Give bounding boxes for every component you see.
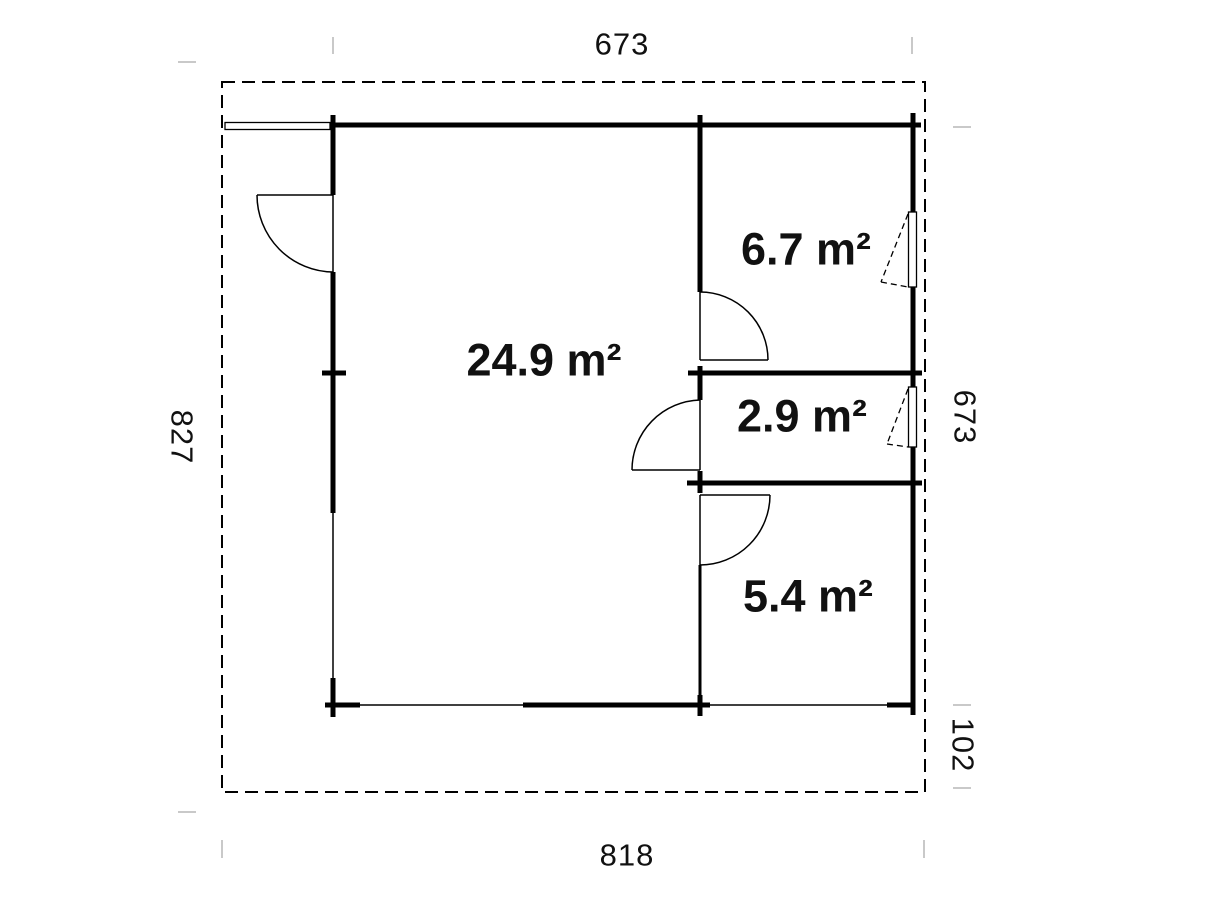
dimension-label-top: 673	[595, 27, 650, 62]
door-swing-arc-room-bottom-right	[700, 495, 770, 565]
room-area-label-bottom-right: 5.4 m²	[743, 571, 873, 622]
floor-plan-canvas: 24.9 m² 6.7 m² 2.9 m² 5.4 m² 673 818 827…	[0, 0, 1214, 911]
floor-plan-drawing: 24.9 m² 6.7 m² 2.9 m² 5.4 m² 673 818 827…	[0, 0, 1214, 911]
room-area-label-top-right: 6.7 m²	[741, 224, 871, 275]
window-room-top-right	[909, 212, 917, 287]
window-opening-symbol-top	[881, 214, 908, 287]
window-room-mid-right	[909, 387, 917, 447]
room-area-label-main: 24.9 m²	[466, 335, 621, 386]
dimension-label-bottom: 818	[600, 838, 655, 873]
entry-door-swing-arc	[257, 195, 333, 272]
wall-log-extension	[225, 123, 330, 130]
dimension-ticks	[178, 37, 971, 858]
dimension-label-right-upper: 673	[948, 390, 983, 445]
room-area-label-mid-right: 2.9 m²	[737, 391, 867, 442]
door-swing-arc-room-mid-right	[632, 400, 700, 470]
door-swing-arc-room-top-right	[700, 292, 768, 360]
dimension-label-right-lower: 102	[946, 718, 981, 773]
window-opening-symbol-mid	[887, 389, 908, 447]
dimension-label-left: 827	[165, 410, 200, 465]
